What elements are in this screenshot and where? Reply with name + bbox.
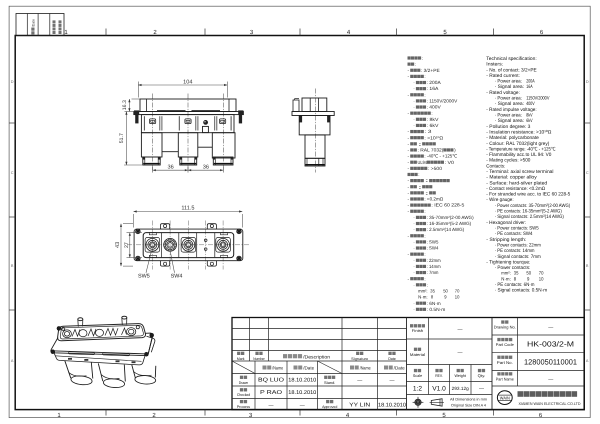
svg-text:: 3/2+PE: : 3/2+PE [421,68,440,73]
svg-text:111.5: 111.5 [181,206,194,212]
svg-text:C: C [11,171,14,175]
svg-text:: SW5: : SW5 [427,240,439,245]
svg-text:293.12g: 293.12g [452,386,469,391]
svg-text:/Date: /Date [303,366,314,371]
svg-text:51.7: 51.7 [119,133,125,143]
svg-text:: -40℃ - +125℃: : -40℃ - +125℃ [424,154,457,159]
svg-text:- Wire gauge:: - Wire gauge: [486,197,513,203]
svg-text:104: 104 [183,79,192,85]
svg-text:Number: Number [253,357,265,361]
svg-text:REV.: REV. [435,373,443,378]
svg-text:- Flammability acc.to UL 94: V: - Flammability acc.to UL 94: V0 [486,152,551,158]
svg-text:—: — [458,350,463,356]
svg-text:C: C [586,171,589,175]
svg-text:Material: Material [410,352,425,357]
svg-text:·: · [413,117,415,122]
svg-text:D: D [11,80,14,84]
svg-text:- Tightening tourque:: - Tightening tourque: [486,259,530,265]
svg-text:- Stripping length:: - Stripping length: [486,237,526,243]
svg-text:36: 36 [203,165,209,171]
svg-text:- Hexagonal driver:: - Hexagonal driver: [486,220,526,226]
svg-text:: 14mm: : 14mm [427,264,441,269]
svg-text:- Mating cycles: >500: - Mating cycles: >500 [486,158,530,164]
svg-text:27: 27 [124,242,130,248]
svg-text:18.10.2010: 18.10.2010 [378,403,406,409]
svg-text:70: 70 [455,289,460,294]
svg-text:: 2.5mm²(14 AWG): : 2.5mm²(14 AWG) [427,227,465,232]
svg-text:Mark: Mark [237,357,245,361]
svg-text::: : [418,184,423,189]
svg-text:· Power contacts:: · Power contacts: [495,265,531,271]
svg-text:/Description: /Description [303,354,330,360]
svg-text:- No. of contact: 3/2+PE: - No. of contact: 3/2+PE [486,67,537,73]
svg-text:· PE contacts: 16-35mm²(5-2 AW: · PE contacts: 16-35mm²(5-2 AWG) [495,209,563,215]
svg-text:36: 36 [167,165,173,171]
svg-text:- Surface: hard-silver plated: - Surface: hard-silver plated [486,180,547,186]
svg-text:9: 9 [444,295,447,300]
svg-text:—: — [300,403,305,409]
svg-text:Scale: Scale [413,373,423,378]
svg-text:: 400V: : 400V [427,105,442,110]
svg-text:35: 35 [430,289,435,294]
svg-text:6kV: 6kV [526,118,533,124]
svg-text:A: A [586,359,589,363]
svg-text:Drawn: Drawn [239,381,249,385]
svg-text:18.10.2010: 18.10.2010 [288,378,316,384]
svg-text:—: — [479,386,484,392]
svg-text:: 3: : 3 [424,129,432,134]
svg-text:· PE contacts: SW4: · PE contacts: SW4 [495,231,533,237]
svg-text:· Signal contacts: 2.5mm²(14 A: · Signal contacts: 2.5mm²(14 AWG) [495,214,565,220]
svg-text:UL94: UL94 [418,160,428,165]
svg-text::: : [424,178,429,183]
svg-text:Date: Date [388,357,396,361]
svg-text:P RAO: P RAO [260,390,283,396]
svg-text:·: · [413,105,415,110]
svg-text:/Date: /Date [32,19,36,27]
svg-text:· Signal area:: · Signal area: [495,101,524,107]
svg-text:—: — [548,377,553,383]
svg-text:B: B [586,264,589,268]
svg-text:V1.0: V1.0 [432,386,446,393]
svg-text:8: 8 [514,276,517,282]
svg-text:: 16-35mm²(5-2 AWG): : 16-35mm²(5-2 AWG) [427,221,472,226]
svg-text:Contacts:: Contacts: [486,163,505,169]
svg-text:—: — [390,378,395,384]
svg-text:: 200A: : 200A [427,80,442,85]
svg-text:- Temperature range: -40℃ - +1: - Temperature range: -40℃ - +125℃ [486,146,556,152]
svg-text:: 6N·m: : 6N·m [427,301,441,306]
svg-text:- Colour: RAL 7032(light grey): - Colour: RAL 7032(light grey) [486,141,549,147]
svg-text:Process: Process [237,405,250,409]
svg-text:: RAL 7032(: : RAL 7032( [418,148,444,153]
svg-text:/Name: /Name [360,366,371,371]
svg-text::: : [418,141,423,146]
svg-text:YY LIN: YY LIN [349,403,370,409]
svg-text:·: · [413,282,415,287]
svg-text::: : [418,172,419,177]
svg-text:18.10.2010: 18.10.2010 [288,390,316,396]
svg-text:8kV: 8kV [526,113,533,119]
svg-text:Stand.: Stand. [324,381,335,385]
svg-text:·: · [413,264,415,269]
svg-text:: 22mm: : 22mm [427,258,441,263]
svg-text:: SW4: : SW4 [427,246,439,251]
svg-text:- Contact resistance: <0.2mΩ: - Contact resistance: <0.2mΩ [486,186,545,192]
svg-text:43: 43 [115,242,121,248]
svg-text::: : [424,252,425,257]
svg-text:·: · [413,221,415,226]
svg-text:- Rated voltage:: - Rated voltage: [486,90,520,96]
svg-text:·: · [413,301,415,306]
svg-text:- Insulation resistance: >10¹⁰: - Insulation resistance: >10¹⁰Ω [486,129,551,135]
svg-text:8: 8 [431,295,434,300]
svg-text:BQ LUO: BQ LUO [258,378,285,384]
svg-text:16A: 16A [526,84,533,90]
svg-text::: : [424,233,425,238]
svg-text:: >500: : >500 [428,166,443,171]
svg-text:·: · [413,86,415,91]
svg-text:- Material: copper alloy: - Material: copper alloy [486,175,537,181]
svg-text:Weight: Weight [455,373,467,378]
svg-text:Signature: Signature [351,357,368,361]
svg-text:· Signal area:: · Signal area: [495,118,524,124]
svg-text:- Terminal: axial screw termin: - Terminal: axial screw terminal [486,169,553,175]
svg-text:Original Size DIN A 4: Original Size DIN A 4 [451,404,486,408]
svg-text::: : [424,276,425,281]
svg-text:400V: 400V [526,101,535,107]
svg-text:16.3: 16.3 [122,100,128,110]
svg-text::: : [424,92,425,97]
svg-text:Part Name: Part Name [496,377,515,382]
svg-text:Technical specification:: Technical specification: [486,56,536,62]
svg-text:Qty.: Qty. [478,373,486,378]
svg-text:—: — [548,325,553,331]
svg-text:: 7mm: : 7mm [427,270,439,275]
svg-text:9: 9 [527,276,530,282]
svg-text:N·m:: N·m: [501,276,511,282]
svg-text:Drawing No.: Drawing No. [494,325,516,330]
svg-text:Part Code: Part Code [496,342,515,347]
svg-text:10: 10 [455,295,460,300]
svg-text:: >10¹⁰Ω: : >10¹⁰Ω [424,135,443,140]
svg-text:All Dimensions in mm: All Dimensions in mm [450,398,487,402]
svg-text:SW5: SW5 [138,274,150,280]
svg-text:—: — [269,403,274,409]
svg-text:: 1150V/2000V: : 1150V/2000V [427,99,459,104]
svg-text:/Name: /Name [272,366,283,371]
svg-text:- Material: polycarbonate: - Material: polycarbonate [486,135,539,141]
svg-text:· PE contacts: 14mm: · PE contacts: 14mm [495,248,535,254]
svg-text::: : [422,56,423,61]
svg-text:·: · [413,227,415,232]
svg-text:Approved: Approved [322,405,337,409]
svg-text:·: · [413,99,415,104]
svg-text:: 35-70mm²(2-00 AWG): : 35-70mm²(2-00 AWG) [427,215,474,220]
svg-text:- For stranded wire acc. to IE: - For stranded wire acc. to IEC 60 228-5 [486,192,570,198]
svg-text:200A: 200A [526,79,535,85]
svg-text:—: — [458,327,463,333]
svg-text:: <0.2mΩ: : <0.2mΩ [424,197,443,202]
svg-text:Insters:: Insters: [486,62,503,68]
svg-text:WAIN: WAIN [500,396,510,401]
svg-text::: : [424,191,429,196]
svg-text:Part No.: Part No. [497,360,513,365]
svg-text:50: 50 [443,289,448,294]
svg-text:· PE contacts: 6N·m: · PE contacts: 6N·m [495,282,535,288]
svg-text:N·m:: N·m: [418,295,428,300]
svg-text:·: · [413,258,415,263]
svg-text:/Date: /Date [394,366,405,371]
svg-text:: 0.5N·m: : 0.5N·m [427,307,446,312]
svg-text:: 8kV: : 8kV [427,117,440,122]
svg-text:· Power area:: · Power area: [495,96,522,102]
svg-text:HK-003/2-M: HK-003/2-M [527,340,574,349]
svg-text:1150V/2000V: 1150V/2000V [526,96,550,102]
svg-text::: : [424,209,425,214]
svg-text:10: 10 [539,276,544,282]
svg-text:·: · [413,123,415,128]
svg-text:70: 70 [539,271,544,277]
svg-text:· Signal area:: · Signal area: [495,84,524,90]
svg-text:· Power area:: · Power area: [495,113,522,119]
svg-text:Finish: Finish [412,328,423,333]
svg-text:·: · [413,215,415,220]
svg-text:· Power area:: · Power area: [495,79,522,85]
svg-text:: IEC 60 228-5: : IEC 60 228-5 [431,203,464,208]
svg-text:· Signal contacts: 0.5N·m: · Signal contacts: 0.5N·m [495,288,547,294]
svg-text:: 16A: : 16A [427,86,440,91]
svg-text:·: · [413,240,415,245]
svg-text::: : [431,111,432,116]
svg-text:· Power contacts: SW5: · Power contacts: SW5 [495,226,539,232]
svg-text:- Rated current:: - Rated current: [486,73,520,79]
svg-text::: : [415,62,416,67]
svg-text:50: 50 [526,271,531,277]
svg-text:· Power contacts: 35-70mm²(2-0: · Power contacts: 35-70mm²(2-00 AWG) [495,203,571,209]
svg-text:SW4: SW4 [171,274,183,280]
svg-text:XIAMEN WAIN ELECTRICAL CO.LTD: XIAMEN WAIN ELECTRICAL CO.LTD [519,402,581,406]
svg-text:: 6kV: : 6kV [427,123,440,128]
svg-text:·: · [413,80,415,85]
svg-text:· Signal contacts: 7mm: · Signal contacts: 7mm [495,254,541,260]
svg-text:·: · [413,307,415,312]
svg-text:Checked: Checked [237,393,250,397]
svg-text:1:2: 1:2 [413,386,422,393]
svg-text:- Pollution degree: 3: - Pollution degree: 3 [486,124,530,130]
svg-text:—: — [357,378,362,384]
svg-text:·: · [413,270,415,275]
svg-text:35: 35 [514,271,519,277]
svg-text:mm²:: mm²: [418,289,428,294]
svg-text:mm²:: mm²: [501,271,511,277]
svg-text::: : [424,74,425,79]
svg-text:: V0: : V0 [445,160,455,165]
svg-text:· Power contacts: 22mm: · Power contacts: 22mm [495,243,541,249]
svg-text:- Rated impulse voltage:: - Rated impulse voltage: [486,107,536,113]
svg-text::: : [427,282,428,287]
svg-text:D: D [586,80,589,84]
svg-text:·: · [413,246,415,251]
svg-text:1280050110001: 1280050110001 [524,358,577,367]
